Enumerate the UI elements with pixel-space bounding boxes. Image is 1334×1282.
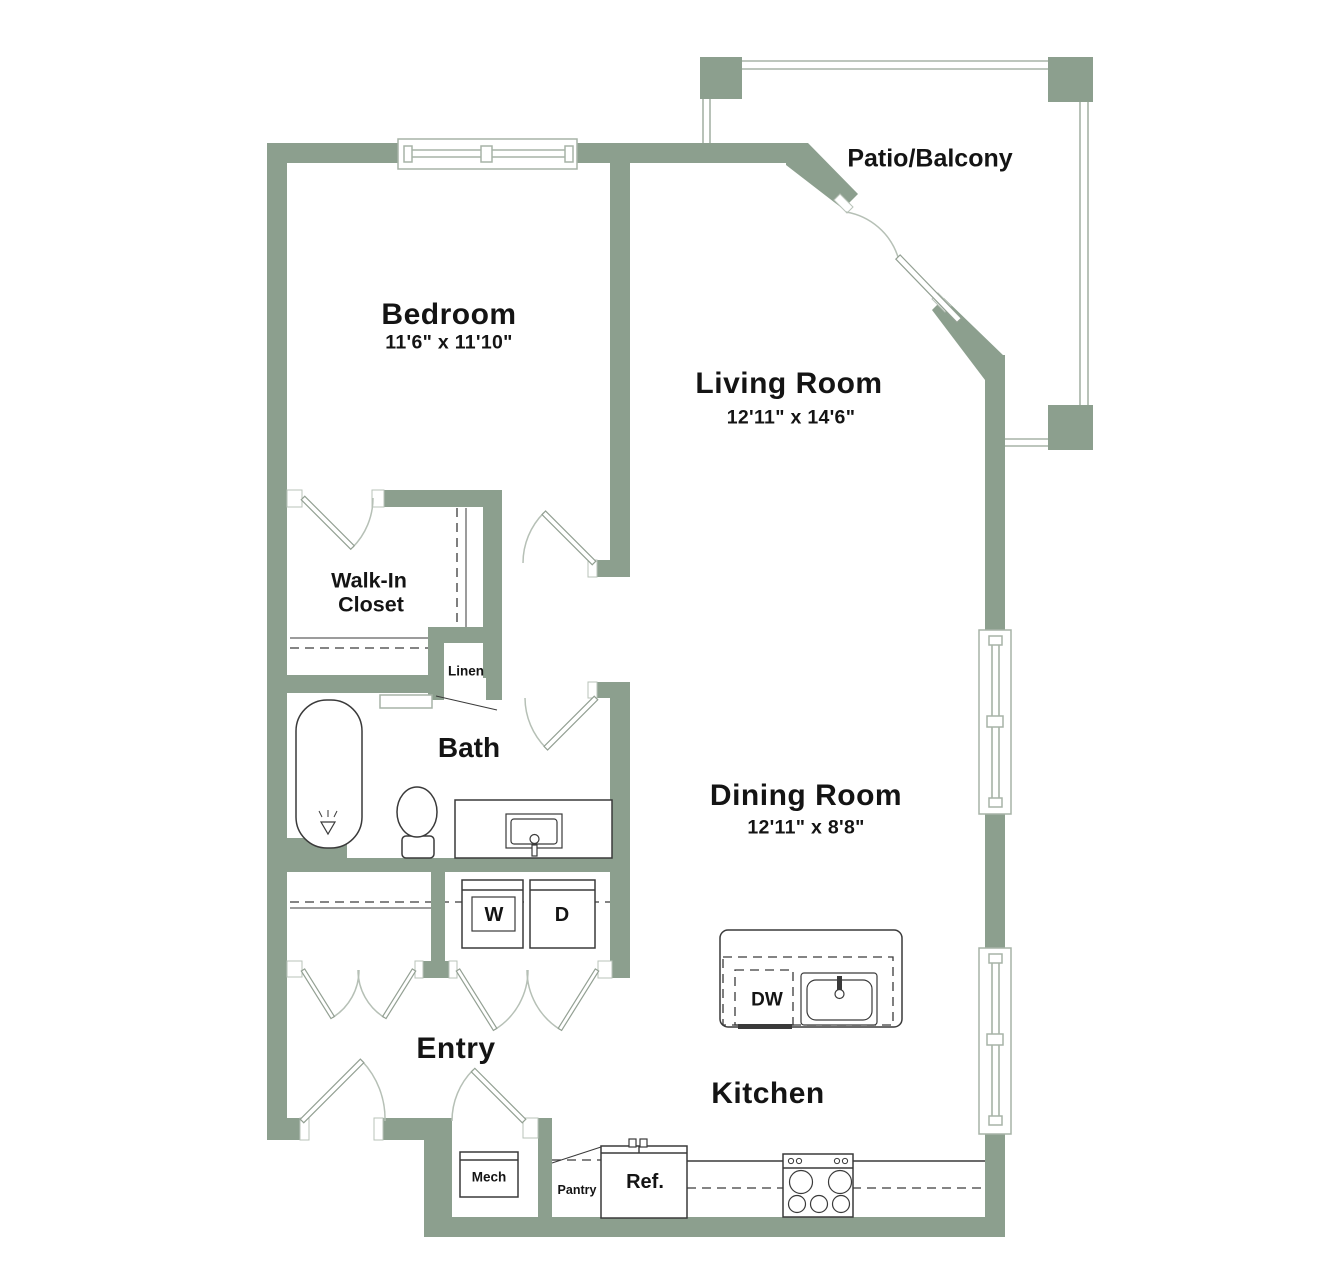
walls bbox=[267, 57, 1093, 1237]
bedroom-label: Bedroom bbox=[381, 300, 516, 330]
mech-label: Mech bbox=[472, 1170, 507, 1184]
patio-post bbox=[1048, 57, 1093, 102]
living-room-label: Living Room bbox=[695, 369, 882, 399]
bath-label: Bath bbox=[438, 734, 500, 762]
patio-door bbox=[846, 212, 961, 322]
bathtub bbox=[296, 700, 362, 848]
linen-label: Linen bbox=[448, 664, 484, 678]
bath-door bbox=[525, 696, 598, 750]
kitchen-island bbox=[720, 930, 902, 1029]
walk-in-closet-door bbox=[301, 496, 373, 549]
island-sink bbox=[801, 973, 877, 1025]
kitchen-label: Kitchen bbox=[711, 1079, 825, 1109]
bath-shelf bbox=[380, 695, 432, 708]
dining-room-label: Dining Room bbox=[710, 781, 902, 811]
floor-plan: Patio/Balcony Bedroom 11'6" x 11'10" Liv… bbox=[0, 0, 1334, 1282]
dining-room-dims: 12'11" x 8'8" bbox=[747, 818, 864, 838]
patio-post bbox=[1048, 405, 1093, 450]
patio-post bbox=[700, 57, 742, 99]
living-room-window bbox=[979, 630, 1011, 814]
pantry-label: Pantry bbox=[558, 1184, 597, 1197]
walkin-closet-label-line1: Walk-In bbox=[331, 570, 407, 592]
dryer-label: D bbox=[555, 905, 569, 925]
toilet bbox=[397, 787, 437, 858]
living-room-dims: 12'11" x 14'6" bbox=[727, 408, 855, 428]
entry-door bbox=[300, 1059, 385, 1123]
entry-label: Entry bbox=[416, 1034, 495, 1064]
fridge-label: Ref. bbox=[626, 1172, 664, 1192]
range-stove bbox=[783, 1154, 853, 1217]
laundry-closet-double-door bbox=[456, 969, 598, 1030]
patio-label: Patio/Balcony bbox=[847, 147, 1012, 172]
floor-plan-drawing bbox=[0, 0, 1334, 1282]
bedroom-window bbox=[398, 139, 577, 169]
vanity-sink bbox=[455, 800, 612, 858]
washer-label: W bbox=[485, 905, 504, 925]
bedroom-door bbox=[523, 511, 596, 565]
dishwasher-label: DW bbox=[751, 991, 783, 1010]
bedroom-dims: 11'6" x 11'10" bbox=[385, 333, 512, 353]
kitchen-window bbox=[979, 948, 1011, 1134]
coat-closet-double-door bbox=[301, 969, 415, 1019]
walkin-closet-label-line2: Closet bbox=[338, 594, 404, 616]
mech-door bbox=[452, 1068, 526, 1122]
